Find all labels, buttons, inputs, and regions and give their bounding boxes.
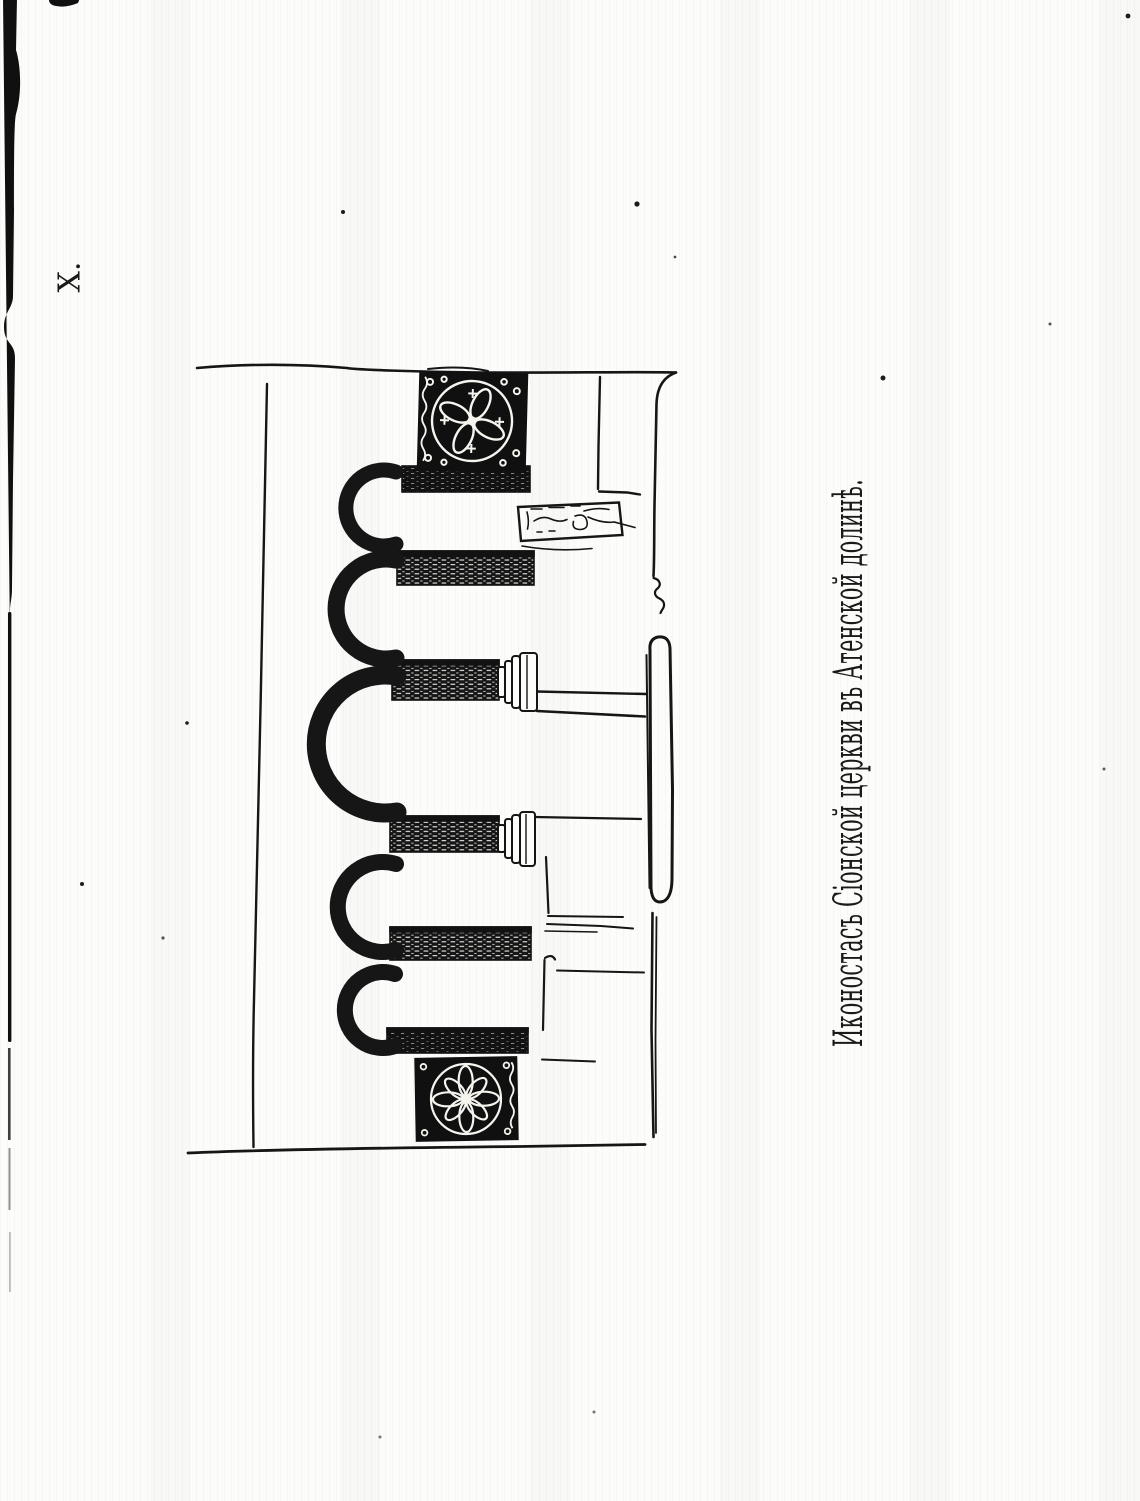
scan-edge-artifact — [3, 0, 80, 1292]
rosette-panel-bottom — [414, 1056, 518, 1142]
rosette-panel-top — [417, 371, 529, 474]
column-capitals — [498, 653, 537, 866]
figure-caption: Иконостасъ Сіонской церкви въ Атенской д… — [826, 479, 872, 1047]
plate-number: X. — [53, 262, 88, 293]
paper-specks — [80, 14, 1130, 1439]
column-bands — [387, 466, 534, 1053]
iconostasis-engraving — [0, 0, 1140, 1501]
scanned-book-page: X. Иконостасъ Сіонской церкви въ Атенско… — [0, 0, 1140, 1501]
